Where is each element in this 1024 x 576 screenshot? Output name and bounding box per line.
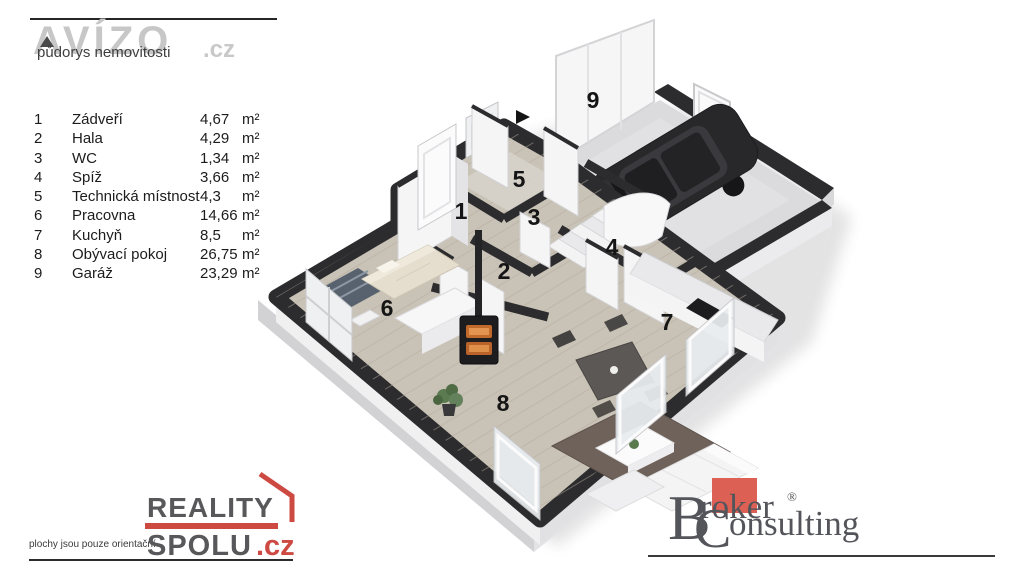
legend-area-unit: m²: [242, 206, 276, 225]
legend-room-name: Technická místnost: [72, 187, 200, 206]
legend-room-area: 23,29: [200, 264, 242, 283]
registered-mark: ®: [787, 490, 797, 503]
page-title: půdorys nemovitosti: [37, 44, 170, 61]
legend-row: 5Technická místnost4,3m²: [34, 187, 276, 206]
floorplan-poster: 123456789 AVÍZO .cz půdorys nemovitosti …: [0, 0, 1024, 576]
legend-room-area: 4,29: [200, 129, 242, 148]
legend-row: 2Hala4,29m²: [34, 129, 276, 148]
legend-area-unit: m²: [242, 264, 276, 283]
legend-room-name: Pracovna: [72, 206, 200, 225]
legend-area-unit: m²: [242, 226, 276, 245]
legend-room-name: Garáž: [72, 264, 200, 283]
legend-room-number: 1: [34, 110, 72, 129]
legend-room-number: 8: [34, 245, 72, 264]
legend-row: 8Obývací pokoj26,75m²: [34, 245, 276, 264]
legend-room-number: 7: [34, 226, 72, 245]
legend-room-number: 6: [34, 206, 72, 225]
legend-area-unit: m²: [242, 187, 276, 206]
legend-room-number: 4: [34, 168, 72, 187]
room-number-label: 8: [497, 390, 510, 416]
room-number-label: 9: [587, 87, 600, 113]
legend-room-area: 4,3: [200, 187, 242, 206]
legend-room-area: 26,75: [200, 245, 242, 264]
legend-room-name: Obývací pokoj: [72, 245, 200, 264]
reality-logo-bar: [145, 523, 278, 529]
legend-row: 1Zádveří4,67m²: [34, 110, 276, 129]
disclaimer-text: plochy jsou pouze orientační: [29, 539, 156, 550]
footer-rule-right: [648, 555, 995, 557]
legend-room-area: 14,66: [200, 206, 242, 225]
legend-room-number: 2: [34, 129, 72, 148]
reality-roof-icon: [250, 464, 300, 526]
legend-row: 6Pracovna14,66m²: [34, 206, 276, 225]
legend-room-number: 3: [34, 149, 72, 168]
legend-room-name: Zádveří: [72, 110, 200, 129]
legend-room-number: 5: [34, 187, 72, 206]
reality-logo-tld: .cz: [256, 532, 295, 561]
legend-room-area: 8,5: [200, 226, 242, 245]
room-legend: 1Zádveří4,67m²2Hala4,29m²3WC1,34m²4Spíž3…: [34, 110, 276, 284]
room-number-label: 5: [513, 166, 526, 192]
floorplan-rendering: 123456789: [0, 0, 1024, 576]
legend-row: 7Kuchyň8,5m²: [34, 226, 276, 245]
legend-row: 3WC1,34m²: [34, 149, 276, 168]
legend-area-unit: m²: [242, 110, 276, 129]
legend-row: 4Spíž3,66m²: [34, 168, 276, 187]
consulting-logo-initial: C: [694, 501, 731, 557]
legend-row: 9Garáž23,29m²: [34, 264, 276, 283]
legend-room-area: 4,67: [200, 110, 242, 129]
legend-room-name: Spíž: [72, 168, 200, 187]
room-number-label: 2: [498, 258, 511, 284]
legend-room-name: Kuchyň: [72, 226, 200, 245]
room-number-label: 7: [661, 309, 674, 335]
room-number-label: 1: [455, 198, 468, 224]
legend-area-unit: m²: [242, 129, 276, 148]
legend-room-name: Hala: [72, 129, 200, 148]
footer-rule-left: [29, 559, 293, 561]
reality-logo-bottom: SPOLU: [147, 532, 252, 561]
north-arrow-icon: [516, 110, 530, 124]
broker-logo-word2: onsulting: [729, 506, 859, 541]
room-number-label: 4: [606, 234, 619, 260]
legend-room-name: WC: [72, 149, 200, 168]
legend-room-number: 9: [34, 264, 72, 283]
legend-room-area: 3,66: [200, 168, 242, 187]
legend-area-unit: m²: [242, 168, 276, 187]
legend-area-unit: m²: [242, 245, 276, 264]
legend-area-unit: m²: [242, 149, 276, 168]
room-number-label: 6: [381, 295, 394, 321]
avizo-logo-tld: .cz: [203, 36, 235, 64]
room-number-label: 3: [528, 204, 541, 230]
legend-room-area: 1,34: [200, 149, 242, 168]
